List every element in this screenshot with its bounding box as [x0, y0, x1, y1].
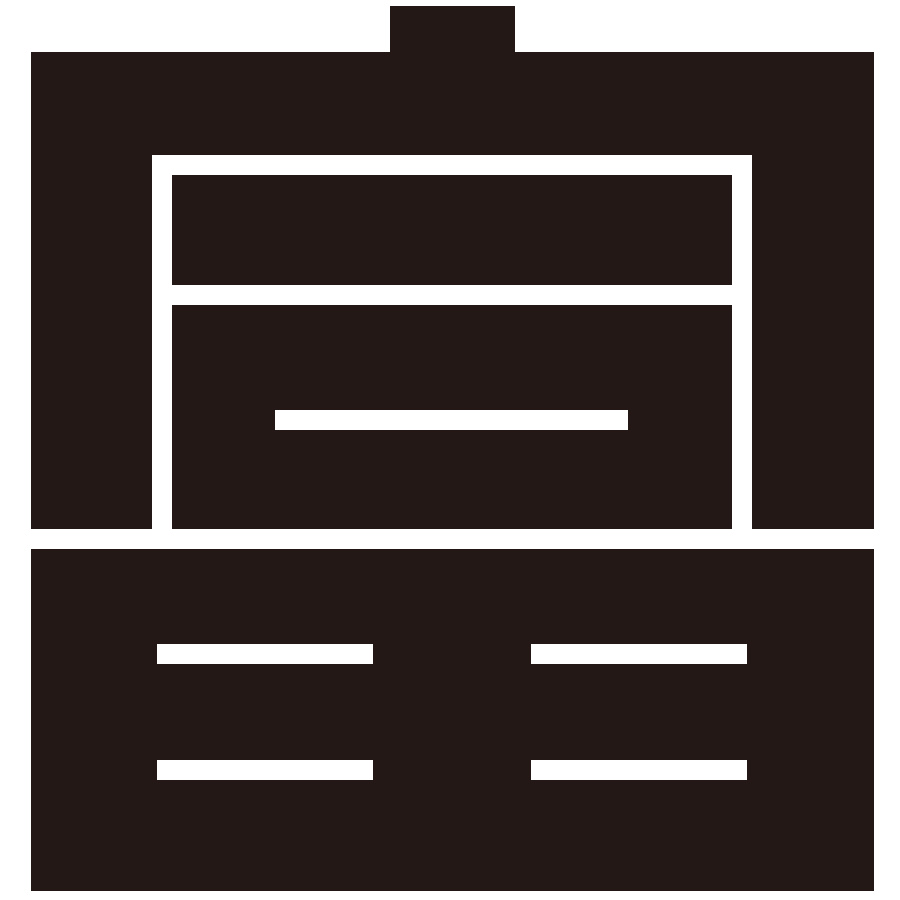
- handle-bar-top-right: [531, 644, 747, 664]
- handle-bar-top-left: [157, 644, 373, 664]
- lid-panel: [172, 175, 732, 285]
- front-handle-slot: [275, 410, 628, 430]
- lid-knob-icon: [390, 6, 515, 56]
- chest-lid-box: [31, 52, 874, 529]
- handle-bar-bottom-right: [531, 760, 747, 780]
- lower-cabinet-box: [31, 549, 874, 891]
- handle-bar-bottom-left: [157, 760, 373, 780]
- storage-chest-icon: [0, 0, 900, 900]
- chest-front-panel: [172, 305, 732, 529]
- open-lid-frame-cutout: [152, 155, 752, 529]
